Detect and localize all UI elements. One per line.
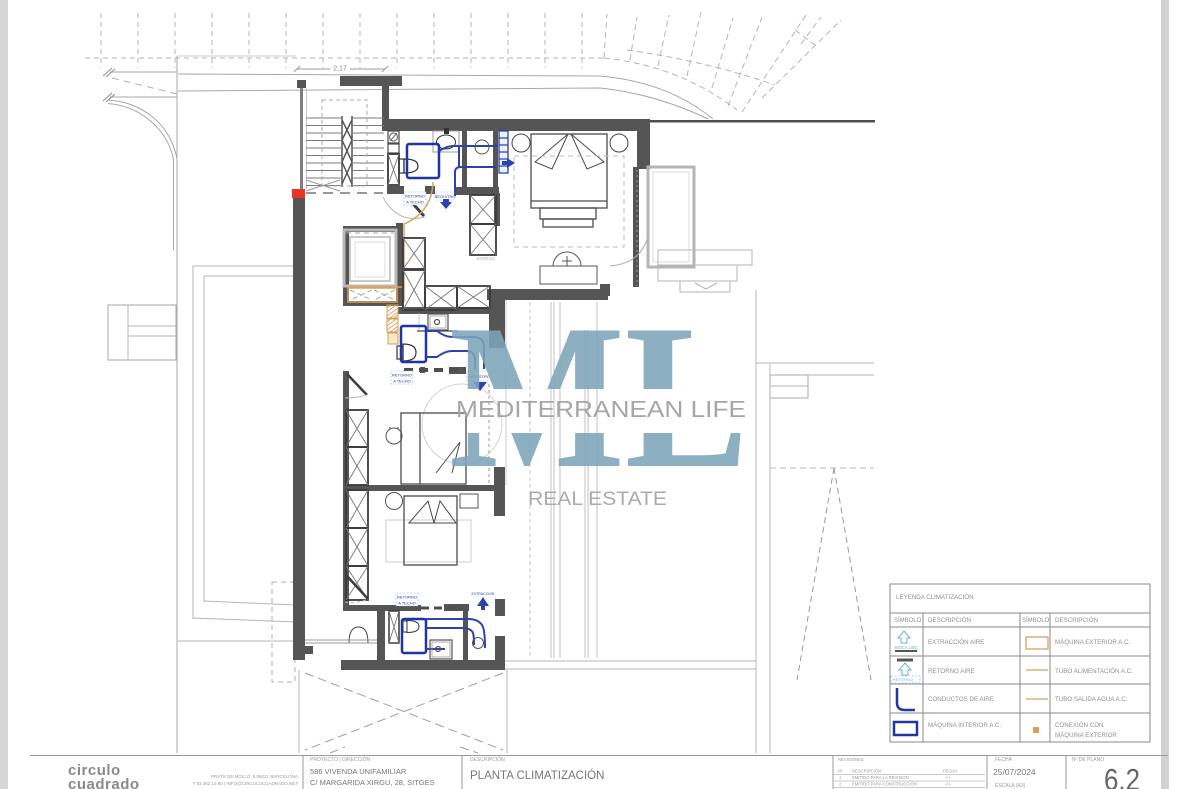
svg-text:RETORNO: RETORNO — [397, 595, 417, 600]
svg-text:586 VIVENDA UNIFAMILIAR: 586 VIVENDA UNIFAMILIAR — [310, 767, 407, 776]
svg-text:ESPEJO: ESPEJO — [477, 256, 495, 261]
svg-text:-/-/-: -/-/- — [945, 775, 952, 780]
svg-text:SÍMBOLO: SÍMBOLO — [894, 617, 922, 624]
svg-text:ESCALA (A3): ESCALA (A3) — [995, 783, 1026, 789]
svg-text:Nº: Nº — [838, 769, 843, 774]
svg-text:25/07/2024: 25/07/2024 — [993, 767, 1036, 777]
svg-text:MÁQUINA EXTERIOR: MÁQUINA EXTERIOR — [1055, 732, 1117, 739]
svg-text:MEDITERRANEAN LIFE: MEDITERRANEAN LIFE — [456, 396, 746, 422]
svg-text:BOCA LBD: BOCA LBD — [895, 645, 918, 650]
svg-text:Nº DE PLANO: Nº DE PLANO — [1072, 757, 1104, 763]
svg-text:EMITIDO PARA LA REVISIÓN: EMITIDO PARA LA REVISIÓN — [852, 775, 909, 780]
svg-text:DESCRIPCIÓN: DESCRIPCIÓN — [852, 769, 881, 774]
svg-text:MÁQUINA EXTERIOR A.C.: MÁQUINA EXTERIOR A.C. — [1055, 639, 1131, 646]
svg-text:A TECHO: A TECHO — [393, 379, 411, 384]
svg-text:EXTRACCIÓN AIRE: EXTRACCIÓN AIRE — [928, 639, 984, 646]
svg-text:DESCRIPCIÓN: DESCRIPCIÓN — [928, 617, 971, 624]
svg-text:REVISIONES: REVISIONES — [838, 757, 864, 762]
svg-text:PRATS DE MOLLÓ, 8 08021 BARCE: PRATS DE MOLLÓ, 8 08021 BARCELONA — [211, 773, 298, 779]
svg-text:RETORNO AIRE: RETORNO AIRE — [928, 668, 975, 675]
svg-text:CONEXIÓN CON: CONEXIÓN CON — [1055, 722, 1103, 729]
svg-text:cuadrado: cuadrado — [68, 776, 140, 789]
svg-text:RETORNO: RETORNO — [405, 194, 425, 199]
svg-text:EMITIDO PARA CONSTRUCCIÓN: EMITIDO PARA CONSTRUCCIÓN — [852, 782, 917, 787]
svg-text:DESCRIPCIÓN: DESCRIPCIÓN — [1055, 617, 1098, 624]
svg-text:MÁQUINA INTERIOR A.C.: MÁQUINA INTERIOR A.C. — [928, 722, 1002, 729]
svg-text:RETORNO: RETORNO — [392, 373, 412, 378]
svg-text:PROYECTO | DIRECCIÓN: PROYECTO | DIRECCIÓN — [310, 756, 370, 763]
svg-text:REGISTRO: REGISTRO — [435, 194, 456, 199]
svg-text:-/-/-: -/-/- — [945, 782, 952, 787]
svg-text:LEYENDA CLIMATIZACIÓN: LEYENDA CLIMATIZACIÓN — [896, 594, 974, 601]
svg-text:REAL ESTATE: REAL ESTATE — [528, 488, 667, 510]
svg-text:C/ MARGARIDA XIRGU, 28, SITGES: C/ MARGARIDA XIRGU, 28, SITGES — [310, 778, 435, 787]
svg-text:A TECHO: A TECHO — [398, 601, 416, 606]
svg-text:2,17: 2,17 — [333, 66, 347, 73]
svg-text:TUBO ALIMENTACIÓN A.C.: TUBO ALIMENTACIÓN A.C. — [1055, 668, 1133, 675]
svg-text:DESCRIPCIÓN: DESCRIPCIÓN — [470, 756, 505, 763]
svg-text:EXTRACCION: EXTRACCION — [472, 592, 495, 596]
svg-text:TUBO SALIDA AGUA A.C.: TUBO SALIDA AGUA A.C. — [1055, 696, 1128, 703]
svg-text:T 93 362 13 80 | INFO@CIRC: T 93 362 13 80 | INFO@CIRCULOCUADRADO.NE… — [193, 781, 299, 786]
svg-text:6.2: 6.2 — [1104, 762, 1140, 789]
svg-text:A TECHO: A TECHO — [406, 200, 424, 205]
svg-text:PLANTA CLIMATIZACIÓN: PLANTA CLIMATIZACIÓN — [470, 769, 604, 782]
svg-text:FECHA: FECHA — [995, 757, 1013, 763]
svg-text:RETORNO: RETORNO — [893, 677, 913, 682]
svg-text:FECHA: FECHA — [943, 769, 957, 774]
svg-text:CONDUCTOS DE AIRE: CONDUCTOS DE AIRE — [928, 696, 994, 703]
svg-text:SÍMBOLO: SÍMBOLO — [1022, 617, 1050, 624]
